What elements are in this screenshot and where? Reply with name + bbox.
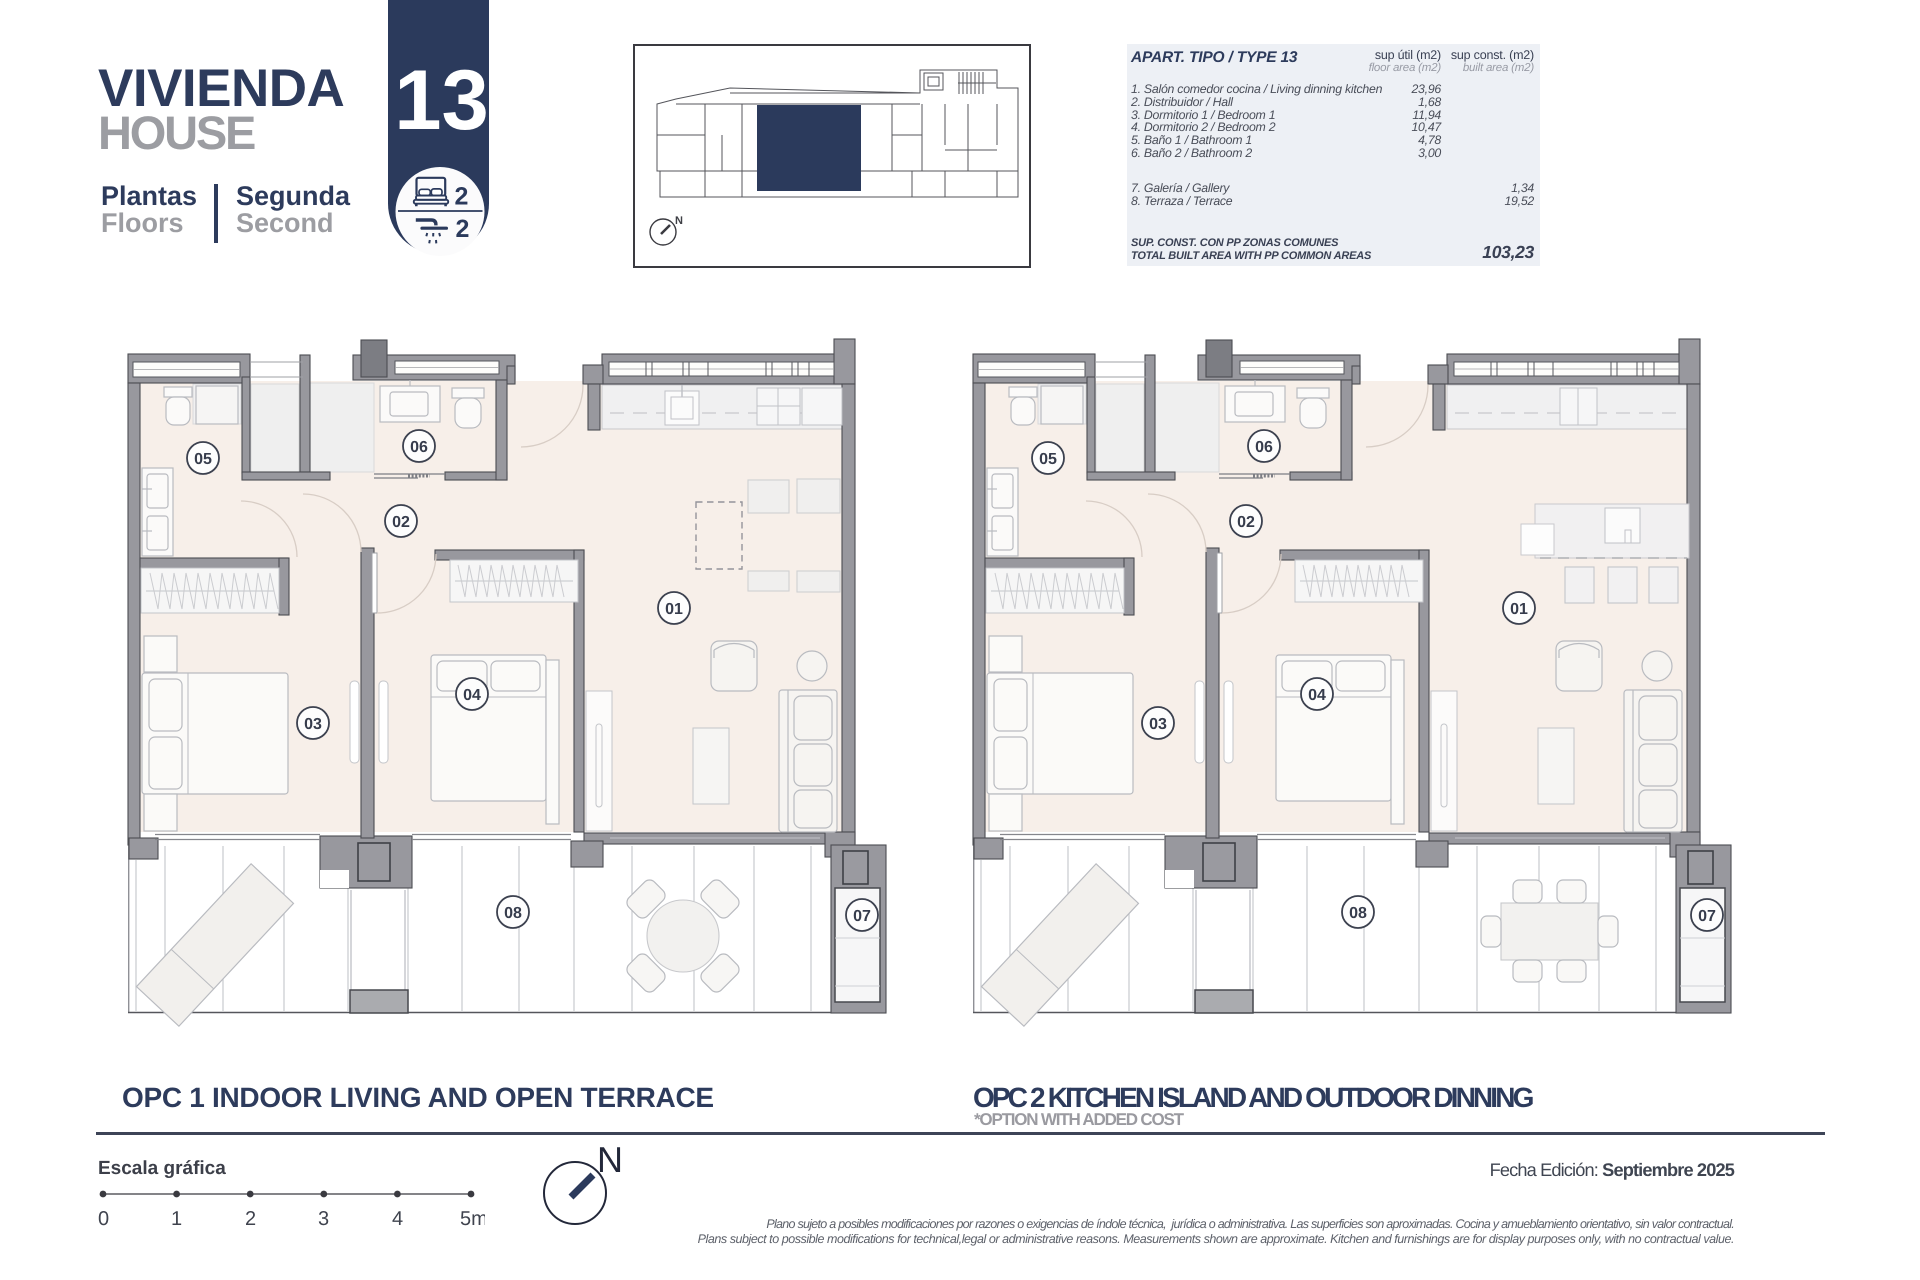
svg-text:3: 3 — [318, 1208, 329, 1230]
svg-text:2: 2 — [245, 1208, 256, 1230]
svg-text:4: 4 — [392, 1208, 403, 1230]
svg-text:0: 0 — [98, 1208, 109, 1230]
svg-text:1: 1 — [171, 1208, 182, 1230]
svg-text:N: N — [597, 1140, 623, 1180]
